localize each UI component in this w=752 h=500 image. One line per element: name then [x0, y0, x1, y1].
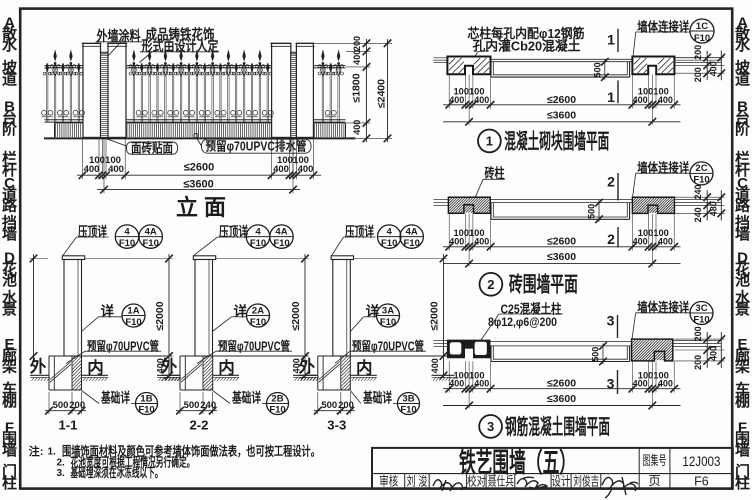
svg-text:页: 页: [648, 474, 661, 488]
svg-text:路: 路: [735, 197, 751, 215]
svg-text:刘 浚: 刘 浚: [407, 474, 428, 489]
svg-text:4A: 4A: [406, 226, 418, 237]
svg-text:F10: F10: [400, 404, 416, 415]
svg-text:≤2600: ≤2600: [184, 162, 215, 174]
svg-text:1A: 1A: [127, 305, 139, 316]
svg-text:≤2600: ≤2600: [547, 236, 576, 248]
svg-text:3-3: 3-3: [327, 419, 346, 433]
svg-text:1B: 1B: [140, 393, 152, 404]
svg-text:F10: F10: [143, 238, 159, 249]
svg-text:外: 外: [161, 356, 178, 376]
svg-text:柱: 柱: [2, 474, 17, 492]
svg-text:8φ12,φ6@200: 8φ12,φ6@200: [488, 315, 557, 329]
svg-text:F10: F10: [404, 238, 420, 249]
svg-text:400: 400: [84, 164, 100, 175]
svg-text:F6: F6: [694, 474, 709, 488]
svg-text:500: 500: [321, 400, 337, 411]
svg-text:预留φ70UPVC排水管: 预留φ70UPVC排水管: [206, 139, 307, 154]
svg-text:240: 240: [693, 184, 703, 199]
svg-text:400: 400: [633, 237, 648, 247]
svg-text:400: 400: [658, 237, 673, 247]
svg-text:≤2400: ≤2400: [376, 79, 388, 108]
svg-text:500: 500: [53, 400, 69, 411]
svg-text:F10: F10: [380, 317, 396, 328]
svg-text:3C: 3C: [695, 303, 707, 314]
svg-text:柱: 柱: [735, 474, 750, 492]
svg-text:墙: 墙: [2, 225, 17, 243]
svg-text:3A: 3A: [382, 305, 394, 316]
svg-text:铁艺围墙（五）: 铁艺围墙（五）: [459, 448, 576, 478]
svg-text:基础详: 基础详: [363, 390, 392, 406]
svg-text:400: 400: [449, 95, 464, 105]
svg-text:400: 400: [449, 379, 464, 389]
svg-text:400: 400: [298, 164, 314, 175]
svg-text:400: 400: [273, 164, 289, 175]
svg-text:校对: 校对: [467, 474, 486, 489]
svg-text:混凝土砌块围墙平面: 混凝土砌块围墙平面: [504, 129, 609, 153]
svg-text:注:: 注:: [29, 444, 44, 458]
svg-text:砖围墙平面: 砖围墙平面: [509, 273, 578, 297]
svg-text:F10: F10: [381, 238, 397, 249]
svg-text:400: 400: [108, 164, 124, 175]
svg-text:400: 400: [352, 50, 362, 65]
svg-text:400: 400: [633, 379, 648, 389]
svg-text:≤2000: ≤2000: [154, 301, 166, 330]
svg-text:4: 4: [124, 226, 130, 237]
svg-text:400: 400: [709, 61, 719, 76]
svg-text:图集号: 图集号: [643, 453, 667, 468]
svg-text:架: 架: [1, 359, 17, 376]
svg-text:水: 水: [735, 36, 751, 54]
svg-text:200: 200: [693, 67, 703, 82]
svg-text:聂仕兵: 聂仕兵: [488, 475, 514, 489]
svg-text:≤3600: ≤3600: [547, 251, 576, 263]
svg-text:3: 3: [607, 313, 615, 329]
svg-text:墙: 墙: [735, 441, 750, 459]
svg-text:400: 400: [449, 237, 464, 247]
svg-text:3: 3: [487, 419, 494, 434]
svg-text:基础详: 基础详: [101, 390, 130, 406]
svg-text:F10: F10: [694, 33, 710, 44]
svg-text:480: 480: [709, 201, 719, 216]
svg-text:200: 200: [693, 326, 703, 341]
svg-text:F10: F10: [250, 238, 266, 249]
svg-text:棚: 棚: [2, 392, 17, 410]
svg-text:景: 景: [2, 300, 17, 318]
svg-text:阶: 阶: [2, 120, 18, 138]
svg-text:400: 400: [658, 95, 673, 105]
svg-text:1-1: 1-1: [59, 419, 78, 433]
svg-text:4A: 4A: [275, 226, 287, 237]
svg-text:钢筋混凝土围墙平面: 钢筋混凝土围墙平面: [505, 415, 610, 439]
svg-text:≤2000: ≤2000: [290, 301, 302, 330]
svg-text:200: 200: [693, 45, 703, 60]
svg-text:240: 240: [693, 207, 703, 222]
svg-text:2B: 2B: [271, 393, 283, 404]
svg-text:400: 400: [352, 120, 362, 135]
svg-text:4A: 4A: [145, 226, 157, 237]
svg-text:水: 水: [2, 36, 18, 54]
svg-text:F10: F10: [250, 317, 266, 328]
svg-text:1: 1: [607, 32, 615, 48]
svg-text:500: 500: [592, 62, 602, 77]
svg-text:200: 200: [693, 355, 703, 370]
svg-text:F10: F10: [125, 317, 141, 328]
svg-text:2: 2: [607, 231, 615, 247]
svg-text:池: 池: [735, 271, 750, 289]
svg-text:12J003: 12J003: [682, 454, 720, 469]
svg-text:基础详: 基础详: [232, 390, 261, 406]
svg-text:1.: 1.: [48, 447, 57, 458]
svg-text:墙: 墙: [735, 225, 750, 243]
svg-text:≤3600: ≤3600: [547, 393, 576, 405]
svg-text:500: 500: [587, 204, 597, 219]
svg-text:200: 200: [352, 36, 362, 51]
svg-text:F10: F10: [693, 314, 709, 325]
svg-text:≤3600: ≤3600: [183, 178, 214, 190]
svg-text:3B: 3B: [402, 393, 414, 404]
svg-text:F10: F10: [693, 175, 709, 186]
svg-text:棚: 棚: [735, 392, 750, 410]
svg-text:4: 4: [387, 226, 393, 237]
svg-text:景: 景: [735, 300, 750, 318]
svg-text:3.: 3.: [57, 468, 66, 479]
svg-text:400: 400: [633, 95, 648, 105]
svg-text:立 面: 立 面: [176, 195, 226, 220]
svg-text:道: 道: [2, 70, 17, 88]
svg-text:240: 240: [200, 400, 216, 411]
svg-text:砖柱: 砖柱: [485, 165, 505, 181]
svg-text:架: 架: [734, 359, 750, 376]
svg-text:基础埋深须在冰冻线以下。: 基础埋深须在冰冻线以下。: [70, 465, 163, 480]
svg-text:400: 400: [430, 358, 440, 373]
svg-text:≤2600: ≤2600: [547, 94, 576, 106]
svg-text:内: 内: [356, 357, 373, 377]
svg-text:500: 500: [184, 400, 200, 411]
svg-text:2-2: 2-2: [190, 419, 209, 433]
svg-text:池: 池: [2, 271, 17, 289]
svg-text:阶: 阶: [735, 120, 751, 138]
svg-text:面砖贴面: 面砖贴面: [131, 141, 173, 156]
svg-text:400: 400: [474, 379, 489, 389]
svg-text:外: 外: [299, 356, 316, 376]
svg-text:设计: 设计: [552, 474, 571, 489]
svg-text:路: 路: [2, 197, 18, 215]
svg-text:400: 400: [709, 346, 719, 361]
svg-text:400: 400: [474, 237, 489, 247]
svg-text:2: 2: [607, 174, 615, 190]
svg-text:F10: F10: [269, 404, 285, 415]
svg-text:内: 内: [87, 357, 104, 377]
svg-text:F10: F10: [138, 404, 154, 415]
svg-text:≤2000: ≤2000: [429, 301, 441, 330]
svg-text:外: 外: [30, 356, 47, 376]
svg-text:500: 500: [591, 347, 601, 362]
svg-text:F10: F10: [273, 238, 289, 249]
svg-text:墙: 墙: [2, 441, 17, 459]
svg-text:≤1800: ≤1800: [351, 73, 363, 102]
svg-text:2A: 2A: [252, 305, 264, 316]
svg-text:1: 1: [607, 89, 615, 105]
svg-text:200: 200: [69, 400, 85, 411]
svg-text:2: 2: [487, 277, 494, 292]
svg-text:4: 4: [255, 226, 261, 237]
svg-text:F10: F10: [119, 238, 135, 249]
svg-text:内: 内: [218, 357, 235, 377]
svg-text:400: 400: [658, 379, 673, 389]
svg-text:刘俊吉: 刘俊吉: [573, 474, 599, 489]
svg-text:2C: 2C: [695, 163, 707, 174]
svg-text:2.: 2.: [57, 457, 66, 468]
svg-text:400: 400: [474, 95, 489, 105]
svg-text:1: 1: [486, 134, 493, 149]
svg-text:≤2600: ≤2600: [547, 378, 576, 390]
svg-text:200: 200: [338, 400, 354, 411]
svg-text:审核: 审核: [379, 474, 398, 489]
svg-text:1C: 1C: [696, 21, 708, 32]
svg-text:≤3600: ≤3600: [547, 109, 576, 121]
svg-text:道: 道: [735, 70, 750, 88]
